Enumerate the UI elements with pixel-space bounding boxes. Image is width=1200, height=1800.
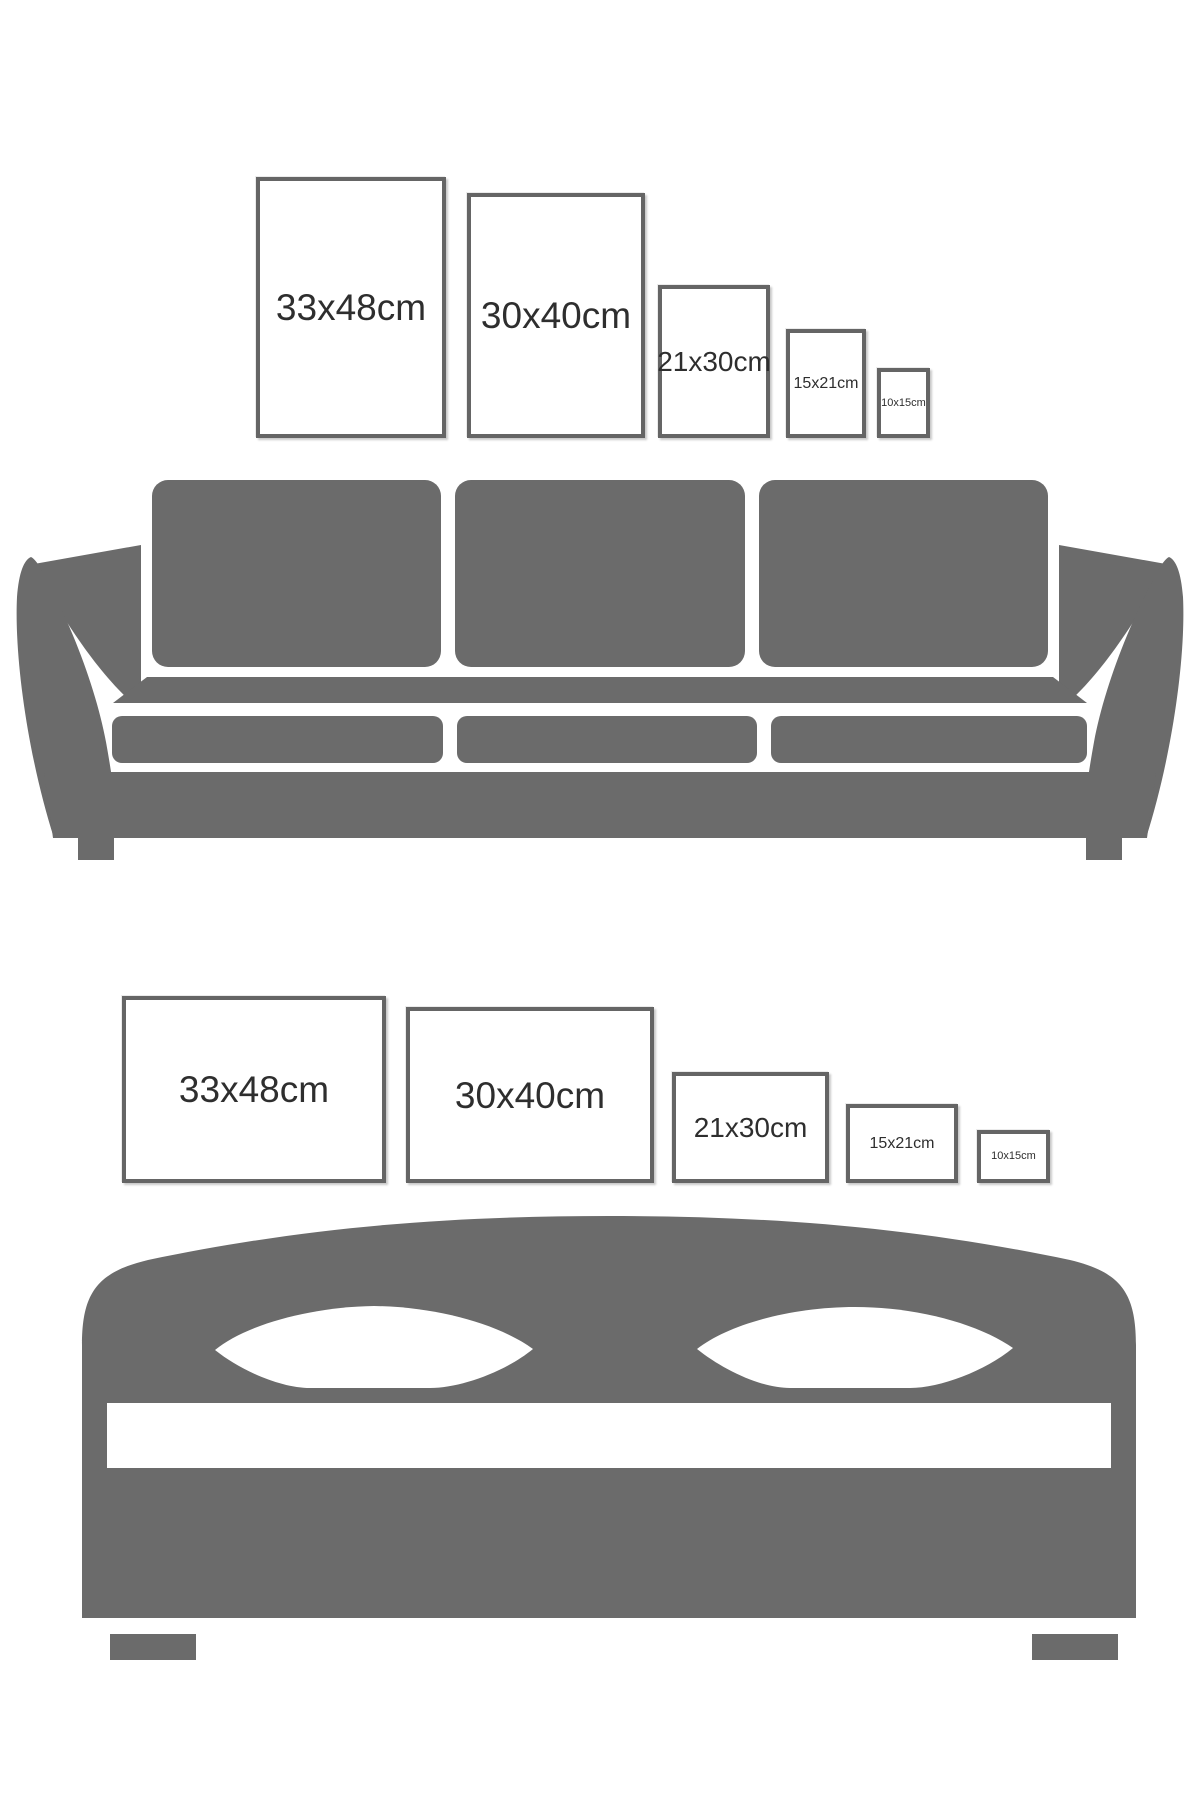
size-frame-21x30-landscape: 21x30cm — [672, 1072, 829, 1183]
size-label: 21x30cm — [694, 1114, 808, 1142]
size-frame-10x15-landscape: 10x15cm — [977, 1130, 1050, 1183]
size-label: 15x21cm — [870, 1136, 935, 1152]
size-label: 10x15cm — [991, 1151, 1036, 1162]
size-label: 30x40cm — [481, 297, 631, 334]
size-frame-15x21-landscape: 15x21cm — [846, 1104, 958, 1183]
sofa-back-cushion-right — [759, 480, 1048, 667]
sofa-seat-cushion-right — [771, 716, 1087, 763]
poster-size-guide: 33x48cm 30x40cm 21x30cm 15x21cm 10x15cm — [0, 0, 1200, 1800]
sofa-seat-cushion-middle — [457, 716, 757, 763]
size-frame-33x48-landscape: 33x48cm — [122, 996, 386, 1183]
bed-right-leg — [1032, 1634, 1118, 1660]
size-label: 33x48cm — [276, 289, 426, 326]
size-frame-30x40-landscape: 30x40cm — [406, 1007, 654, 1183]
size-label: 30x40cm — [455, 1077, 605, 1114]
bed-silhouette — [0, 1190, 1200, 1680]
sofa-back-cushion-left — [152, 480, 441, 667]
bed-base — [82, 1468, 1136, 1618]
size-label: 15x21cm — [794, 376, 859, 392]
size-frame-33x48-portrait: 33x48cm — [256, 177, 446, 438]
sofa-back-cushion-middle — [455, 480, 745, 667]
size-label: 33x48cm — [179, 1071, 329, 1108]
bed-left-leg — [110, 1634, 196, 1660]
size-label: 21x30cm — [657, 348, 771, 376]
sofa-seat-deck — [113, 677, 1087, 703]
sofa-seat-cushion-left — [112, 716, 443, 763]
sofa-silhouette — [0, 400, 1200, 870]
sofa-right-leg — [1086, 838, 1122, 860]
sofa-left-leg — [78, 838, 114, 860]
sofa-base — [44, 772, 1156, 838]
